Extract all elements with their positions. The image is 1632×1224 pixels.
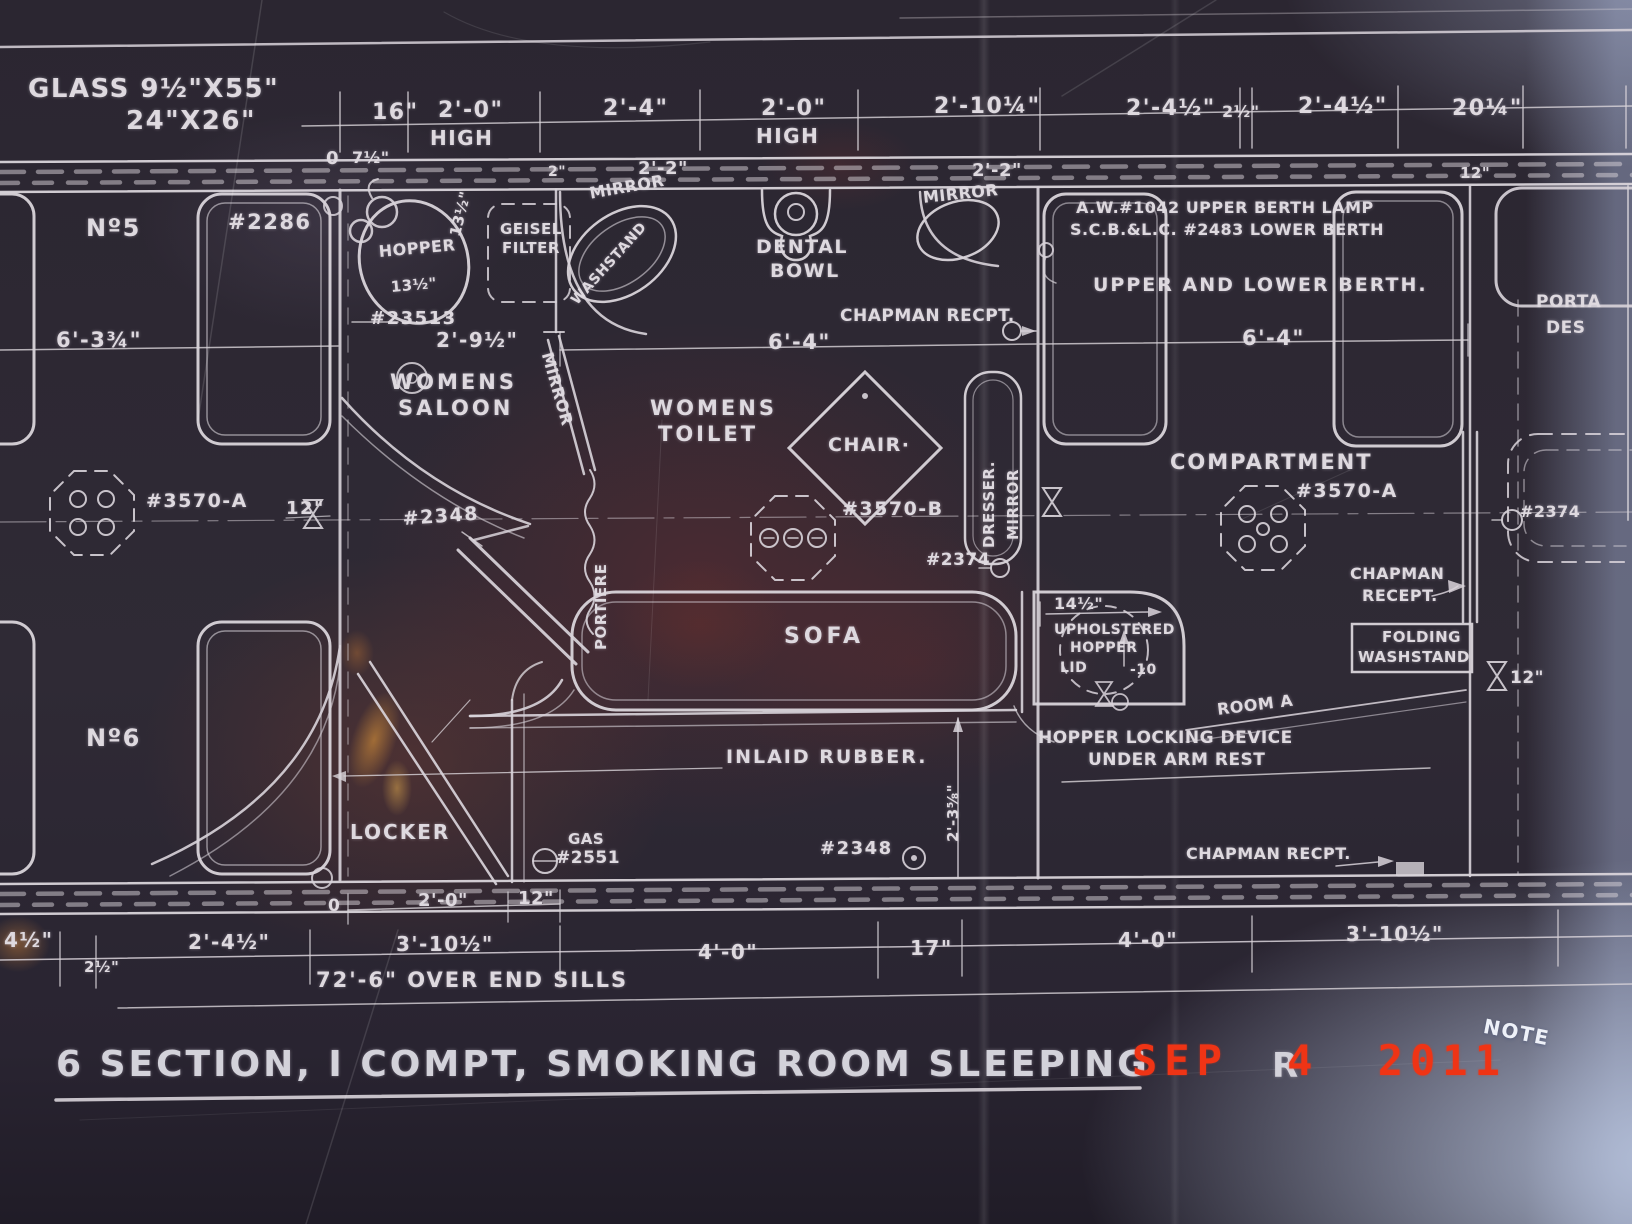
note-hopper-locking-1: HOPPER LOCKING DEVICE bbox=[1038, 728, 1293, 748]
note-inlaid-rubber: INLAID RUBBER. bbox=[726, 746, 927, 768]
part-3570a-right: #3570-A bbox=[1296, 480, 1398, 502]
drawing-title: 6 SECTION, I COMPT, SMOKING ROOM SLEEPIN… bbox=[56, 1044, 1150, 1085]
dim-2-4: 2'-4" bbox=[603, 96, 668, 121]
dim-7-half: 7½" bbox=[352, 148, 390, 167]
dim-2-0-a: 2'-0" bbox=[438, 98, 503, 123]
dim-6-3-threequarter: 6'-3¾" bbox=[56, 328, 142, 352]
dim-high-a: HIGH bbox=[430, 126, 493, 150]
dim-14-half: 14½" bbox=[1054, 594, 1103, 613]
fixture-dental-line2: BOWL bbox=[770, 260, 840, 282]
dim-2-0-b: 2'-0" bbox=[761, 96, 826, 121]
fixture-geisel-line1: GEISEL bbox=[500, 220, 562, 238]
note-hopper-locking-2: UNDER ARM REST bbox=[1088, 750, 1265, 770]
glass-spec-line1: GLASS 9½"X55" bbox=[28, 74, 279, 104]
fixture-chapman-top: CHAPMAN RECPT. bbox=[840, 306, 1015, 326]
fixture-chapman-right-1: CHAPMAN bbox=[1350, 564, 1444, 583]
dim-16: 16" bbox=[372, 100, 419, 125]
section-no5: Nº5 bbox=[86, 214, 141, 242]
dim-3-10-half-a: 3'-10½" bbox=[396, 932, 494, 956]
room-womens-saloon-1: WOMENS bbox=[390, 370, 517, 394]
part-3570a-left: #3570-A bbox=[146, 490, 248, 512]
fixture-sofa: SOFA bbox=[784, 624, 864, 649]
note-aw-lamp-line1: A.W.#1042 UPPER BERTH LAMP bbox=[1076, 198, 1374, 217]
fixture-folding-washstand-1: FOLDING bbox=[1382, 628, 1461, 646]
part-2348-bottom: #2348 bbox=[820, 838, 893, 859]
dim-2-4-half-b: 2'-4½" bbox=[1298, 94, 1388, 119]
part-3570b: #3570-B bbox=[842, 498, 944, 520]
part-2374-right: #2374 bbox=[1520, 502, 1580, 521]
room-womens-saloon-2: SALOON bbox=[398, 396, 513, 420]
dim-high-b: HIGH bbox=[756, 124, 819, 148]
dim-12-top: 12" bbox=[1460, 164, 1490, 182]
glass-spec-line2: 24"X26" bbox=[126, 106, 256, 136]
section-no6: Nº6 bbox=[86, 724, 141, 752]
dim-2-half-bl: 2½" bbox=[84, 958, 119, 976]
fixture-chapman-bottom: CHAPMAN RECPT. bbox=[1186, 844, 1351, 863]
date-stamp: SEP 4 2011 bbox=[1132, 1036, 1507, 1085]
fixture-dresser-mirror: MIRROR bbox=[1004, 469, 1022, 540]
label-upper-lower-berth: UPPER AND LOWER BERTH. bbox=[1093, 274, 1428, 296]
room-womens-toilet-1: WOMENS bbox=[650, 396, 777, 420]
fixture-upholstered-2: HOPPER bbox=[1070, 640, 1137, 656]
dim-2-3-fiveeighth: 2'-3⅝" bbox=[944, 784, 962, 842]
part-23513: #23513 bbox=[370, 308, 457, 329]
label-porta-2: DES bbox=[1546, 318, 1585, 338]
dim-20-quarter: 20¼" bbox=[1452, 96, 1523, 121]
dim-2-half-top: 2½" bbox=[1222, 102, 1260, 121]
room-womens-toilet-2: TOILET bbox=[658, 422, 758, 446]
dim-zero-bottom: 0 bbox=[328, 896, 340, 916]
fixture-dresser: DRESSER. bbox=[980, 461, 998, 548]
dim-over-end-sills: 72'-6" OVER END SILLS bbox=[316, 968, 628, 992]
fixture-dental-line1: DENTAL bbox=[756, 236, 848, 258]
fixture-gas-1: GAS bbox=[568, 830, 604, 848]
dim-6-4-right: 6'-4" bbox=[1242, 326, 1305, 350]
fixture-gas-2: #2551 bbox=[556, 848, 620, 868]
dim-4-0-a: 4'-0" bbox=[698, 940, 758, 964]
fixture-geisel-line2: FILTER bbox=[502, 239, 560, 257]
room-compartment: COMPARTMENT bbox=[1170, 450, 1373, 474]
dim-2-2-b: 2'-2" bbox=[972, 160, 1022, 181]
note-aw-lamp-line2: S.C.B.&L.C. #2483 LOWER BERTH bbox=[1070, 220, 1384, 239]
part-2286: #2286 bbox=[228, 210, 312, 234]
fixture-chair: CHAIR· bbox=[828, 434, 910, 456]
dim-17: 17" bbox=[910, 936, 953, 960]
dim-2-4-half-a: 2'-4½" bbox=[1126, 96, 1216, 121]
fixture-upholstered-3: LID bbox=[1060, 660, 1087, 676]
label-porta-1: PORTA bbox=[1536, 292, 1601, 312]
fixture-portiere: PORTIERE bbox=[592, 564, 610, 650]
fixture-upholstered-1: UPHOLSTERED bbox=[1054, 622, 1175, 638]
fixture-locker: LOCKER bbox=[350, 820, 450, 844]
dim-2-4-half-bottom: 2'-4½" bbox=[188, 930, 270, 954]
dim-2-small: 2" bbox=[548, 164, 566, 180]
dim-2-9-half: 2'-9½" bbox=[436, 328, 518, 352]
dim-2-10-quarter: 2'-10¼" bbox=[934, 94, 1041, 119]
part-2374-mid: #2374 bbox=[926, 550, 990, 570]
blueprint-photo: GLASS 9½"X55" 24"X26" 16" 2'-0" HIGH 2'-… bbox=[0, 0, 1632, 1224]
dim-minus-10: -10 bbox=[1130, 662, 1157, 678]
dim-12-left: 12" bbox=[286, 498, 325, 519]
fixture-chapman-right-2: RECEPT. bbox=[1362, 586, 1438, 605]
dim-12-bottom: 12" bbox=[518, 888, 554, 909]
dim-zero-top: 0 bbox=[326, 148, 339, 169]
dim-12-right: 12" bbox=[1510, 668, 1544, 688]
dim-6-4-left: 6'-4" bbox=[768, 330, 831, 354]
dim-4-half-bl: 4½" bbox=[4, 928, 54, 952]
fixture-folding-washstand-2: WASHSTAND bbox=[1358, 648, 1470, 666]
dim-4-0-b: 4'-0" bbox=[1118, 928, 1178, 952]
dim-2-0-bottom: 2'-0" bbox=[418, 890, 468, 911]
dim-3-10-half-b: 3'-10½" bbox=[1346, 922, 1444, 946]
